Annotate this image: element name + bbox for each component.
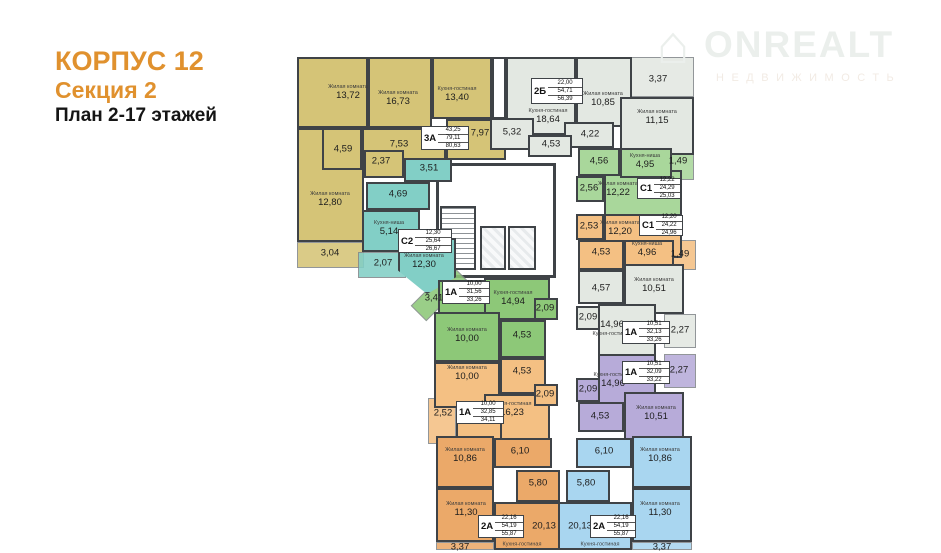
apt-2b-room bbox=[528, 135, 572, 157]
apt-1a-gray-areas: 10,5132,1333,26 bbox=[639, 322, 669, 343]
apt-2a-right-room bbox=[632, 436, 692, 488]
apt-2b-area-base: 54,71 bbox=[548, 88, 582, 96]
apt-3a-area-living: 43,25 bbox=[438, 127, 468, 135]
apt-s2-area-total: 26,67 bbox=[415, 246, 451, 253]
apt-s1-green-area-total: 25,03 bbox=[654, 193, 680, 200]
apt-s2-room bbox=[404, 158, 452, 182]
apt-s2-summary-label: С212,3025,6426,67 bbox=[398, 229, 452, 253]
apt-s2-room bbox=[366, 182, 430, 210]
apt-3a-room bbox=[297, 57, 368, 128]
apt-s2-areas: 12,3025,6426,67 bbox=[415, 230, 451, 252]
apt-2a-left-type: 2А bbox=[479, 516, 495, 537]
apt-2a-right-area-living: 22,16 bbox=[607, 515, 635, 523]
apt-3a-balcony bbox=[297, 242, 364, 268]
apt-1a-purple-areas: 10,5132,0933,22 bbox=[639, 362, 669, 383]
apt-2a-left-room bbox=[516, 470, 560, 502]
apt-2a-left-area-total: 55,87 bbox=[495, 531, 523, 538]
apt-1a-purple-type: 1А bbox=[623, 362, 639, 383]
apt-s1-green-room bbox=[576, 176, 604, 202]
apt-2a-right-room bbox=[566, 470, 610, 502]
apt-2b-area-total: 56,39 bbox=[548, 96, 582, 103]
apt-1a-green-area-total: 33,26 bbox=[459, 297, 489, 304]
apt-2a-left-area-base: 54,19 bbox=[495, 523, 523, 531]
apt-2a-left-room bbox=[436, 436, 494, 488]
apt-3a-area-base: 79,11 bbox=[438, 135, 468, 143]
apt-1a-gray-type: 1А bbox=[623, 322, 639, 343]
apt-2b-room bbox=[620, 97, 694, 155]
house-icon: ⌂ bbox=[642, 16, 704, 74]
apt-1a-green-summary-label: 1А10,0031,5633,26 bbox=[442, 281, 490, 304]
apt-2a-right-area-base: 54,19 bbox=[607, 523, 635, 531]
apt-1a-purple-room bbox=[578, 402, 624, 432]
apt-2a-right-room bbox=[576, 438, 632, 468]
apt-s1-green-room bbox=[620, 148, 672, 178]
apt-s1-orange-area-living: 12,20 bbox=[656, 214, 682, 222]
apt-s1-orange-room bbox=[576, 214, 604, 240]
apt-3a-area-total: 80,63 bbox=[438, 143, 468, 150]
apt-1a-orange-area-living: 10,00 bbox=[473, 401, 503, 409]
apt-2a-right-area-total: 55,87 bbox=[607, 531, 635, 538]
apt-s1-green-room bbox=[578, 148, 620, 176]
apt-2a-right-type: 2А bbox=[591, 516, 607, 537]
apt-2a-left-summary-label: 2А22,1654,1955,87 bbox=[478, 515, 524, 538]
apt-1a-green-areas: 10,0031,5633,26 bbox=[459, 282, 489, 303]
apt-1a-orange-type: 1А bbox=[457, 402, 473, 423]
apt-3a-room bbox=[368, 57, 432, 128]
apt-s1-green-area-base: 24,29 bbox=[654, 185, 680, 193]
apt-s1-orange-areas: 12,2024,2224,96 bbox=[656, 216, 682, 235]
apt-2a-right-balcony bbox=[632, 542, 692, 550]
apt-1a-gray-area-living: 10,51 bbox=[639, 321, 669, 329]
apt-1a-green-type: 1А bbox=[443, 282, 459, 303]
logo-tagline-text: НЕДВИЖИМОСТЬ bbox=[716, 72, 901, 84]
title-block: КОРПУС 12 Секция 2 План 2-17 этажей bbox=[55, 46, 217, 128]
apt-1a-green-room bbox=[500, 320, 546, 358]
apt-1a-orange-room bbox=[534, 384, 558, 406]
apt-1a-purple-area-total: 33,22 bbox=[639, 377, 669, 384]
apt-1a-purple-area-base: 32,09 bbox=[639, 369, 669, 377]
apt-1a-orange-area-total: 34,11 bbox=[473, 417, 503, 424]
floor-plan-page: { "header": { "building": "КОРПУС 12", "… bbox=[0, 0, 941, 550]
apt-s1-orange-area-total: 24,96 bbox=[656, 230, 682, 237]
apt-2a-right-summary-label: 2А22,1654,1955,87 bbox=[590, 515, 636, 538]
apt-1a-orange-summary-label: 1А10,0032,8534,11 bbox=[456, 401, 504, 424]
apt-s1-orange-summary-label: С112,2024,2224,96 bbox=[639, 215, 683, 236]
apt-s1-orange-room bbox=[578, 240, 624, 270]
apt-2b-areas: 22,0054,7156,39 bbox=[548, 79, 582, 103]
apt-1a-gray-room bbox=[576, 306, 600, 330]
apt-3a-type: 3А bbox=[422, 127, 438, 149]
section-title: Секция 2 bbox=[55, 76, 217, 104]
apt-s1-orange-type: С1 bbox=[640, 216, 656, 235]
apt-2a-right-room bbox=[632, 488, 692, 542]
apt-2a-left-balcony bbox=[436, 542, 494, 550]
apt-1a-gray-area-base: 32,13 bbox=[639, 329, 669, 337]
apt-1a-green-area-living: 10,00 bbox=[459, 281, 489, 289]
apt-s2-area-living: 12,30 bbox=[415, 230, 451, 238]
apt-2a-right-areas: 22,1654,1955,87 bbox=[607, 516, 635, 537]
apt-2b-area-living: 22,00 bbox=[548, 80, 582, 88]
apt-3a-summary-label: 3А43,2579,1180,63 bbox=[421, 126, 469, 150]
apt-1a-orange-area-base: 32,85 bbox=[473, 409, 503, 417]
apt-s1-green-areas: 12,2224,2925,03 bbox=[654, 179, 680, 198]
service-shaft bbox=[492, 57, 506, 119]
apt-2b-summary-label: 2Б22,0054,7156,39 bbox=[531, 78, 583, 104]
onrealt-logo: ⌂ ONREALT НЕДВИЖИМОСТЬ bbox=[642, 16, 901, 84]
elevator-shaft bbox=[480, 226, 506, 270]
apt-s2-type: С2 bbox=[399, 230, 415, 252]
apt-3a-room bbox=[322, 128, 362, 170]
apt-1a-gray-room bbox=[578, 270, 624, 304]
apt-3a-room bbox=[364, 150, 404, 178]
apt-3a-room bbox=[432, 57, 492, 119]
logo-brand-text: ONREALT bbox=[704, 24, 894, 66]
apt-2a-left-areas: 22,1654,1955,87 bbox=[495, 516, 523, 537]
apt-2b-type: 2Б bbox=[532, 79, 548, 103]
apt-1a-green-room bbox=[434, 312, 500, 362]
building-title: КОРПУС 12 bbox=[55, 46, 217, 76]
apt-2a-left-area-living: 22,16 bbox=[495, 515, 523, 523]
apt-s1-green-type: С1 bbox=[638, 179, 654, 198]
apt-1a-green-room bbox=[534, 298, 558, 320]
apt-1a-purple-area-living: 10,51 bbox=[639, 361, 669, 369]
elevator-shaft bbox=[508, 226, 536, 270]
apt-s1-green-summary-label: С112,2224,2925,03 bbox=[637, 178, 681, 199]
floors-subtitle: План 2-17 этажей bbox=[55, 104, 217, 128]
apt-1a-purple-summary-label: 1А10,5132,0933,22 bbox=[622, 361, 670, 384]
apt-1a-green-area-base: 31,56 bbox=[459, 289, 489, 297]
apt-1a-gray-summary-label: 1А10,5132,1333,26 bbox=[622, 321, 670, 344]
apt-s1-orange-area-base: 24,22 bbox=[656, 222, 682, 230]
apt-s2-area-base: 25,64 bbox=[415, 238, 451, 246]
apt-1a-purple-room bbox=[576, 378, 600, 402]
apt-1a-orange-areas: 10,0032,8534,11 bbox=[473, 402, 503, 423]
apt-2a-left-room bbox=[494, 438, 552, 468]
apt-1a-gray-area-total: 33,26 bbox=[639, 337, 669, 344]
apt-s1-green-area-living: 12,22 bbox=[654, 177, 680, 185]
apt-3a-areas: 43,2579,1180,63 bbox=[438, 127, 468, 149]
